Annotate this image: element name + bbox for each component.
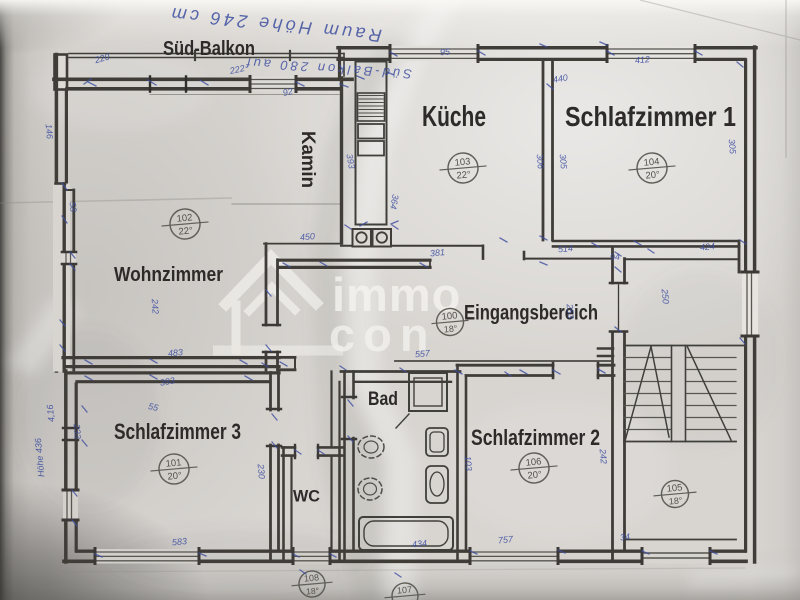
svg-text:757: 757 [497, 534, 514, 546]
svg-text:242: 242 [150, 298, 161, 315]
svg-text:Schlafzimmer 2: Schlafzimmer 2 [471, 425, 600, 450]
svg-text:514: 514 [557, 243, 573, 254]
svg-text:230: 230 [256, 462, 267, 479]
svg-text:483: 483 [167, 347, 183, 358]
svg-text:Süd-Balkon: Süd-Balkon [163, 38, 255, 60]
svg-text:101: 101 [165, 457, 182, 469]
svg-text:100: 100 [441, 310, 458, 322]
svg-text:450: 450 [299, 231, 315, 242]
svg-text:233: 233 [72, 422, 83, 439]
svg-text:Küche: Küche [422, 101, 486, 133]
svg-text:20°: 20° [167, 470, 182, 482]
svg-text:20°: 20° [645, 169, 660, 181]
svg-text:305: 305 [558, 153, 569, 170]
svg-text:95: 95 [439, 46, 451, 57]
svg-text:305: 305 [727, 138, 738, 155]
svg-text:106: 106 [525, 456, 542, 468]
svg-text:58: 58 [68, 201, 79, 212]
svg-text:381: 381 [429, 247, 445, 259]
svg-text:412: 412 [634, 54, 650, 65]
svg-text:18°: 18° [668, 495, 683, 506]
svg-text:94: 94 [609, 252, 620, 263]
svg-text:364: 364 [388, 193, 400, 210]
svg-text:22°: 22° [456, 169, 471, 181]
svg-text:222: 222 [228, 63, 246, 76]
svg-text:Eingangsbereich: Eingangsbereich [464, 301, 598, 325]
svg-text:22°: 22° [178, 225, 193, 237]
svg-text:Kamin: Kamin [297, 131, 318, 188]
svg-text:Schlafzimmer 3: Schlafzimmer 3 [114, 419, 241, 444]
svg-text:Schlafzimmer 1: Schlafzimmer 1 [565, 101, 736, 132]
svg-text:107: 107 [397, 584, 413, 595]
svg-text:306: 306 [535, 153, 546, 169]
svg-text:146: 146 [44, 123, 55, 139]
svg-text:105: 105 [666, 482, 683, 494]
svg-text:557: 557 [414, 348, 431, 359]
svg-text:250: 250 [660, 287, 671, 304]
svg-text:18°: 18° [443, 323, 458, 334]
svg-text:242: 242 [598, 447, 609, 464]
svg-text:34: 34 [619, 532, 630, 543]
svg-text:383: 383 [159, 375, 176, 387]
svg-text:104: 104 [643, 156, 660, 168]
svg-text:253: 253 [565, 302, 576, 319]
svg-text:103: 103 [463, 455, 474, 471]
svg-text:18°: 18° [306, 585, 320, 596]
svg-text:103: 103 [454, 156, 471, 168]
svg-text:424: 424 [699, 241, 715, 252]
svg-text:4,16: 4,16 [45, 404, 56, 422]
svg-text:102: 102 [176, 212, 193, 224]
svg-text:440: 440 [552, 72, 569, 84]
svg-text:WC: WC [293, 487, 320, 506]
svg-text:20°: 20° [527, 469, 542, 481]
svg-text:583: 583 [171, 536, 187, 548]
svg-text:434: 434 [411, 538, 427, 550]
svg-text:Wohnzimmer: Wohnzimmer [114, 263, 223, 286]
svg-text:Bad: Bad [368, 388, 398, 410]
